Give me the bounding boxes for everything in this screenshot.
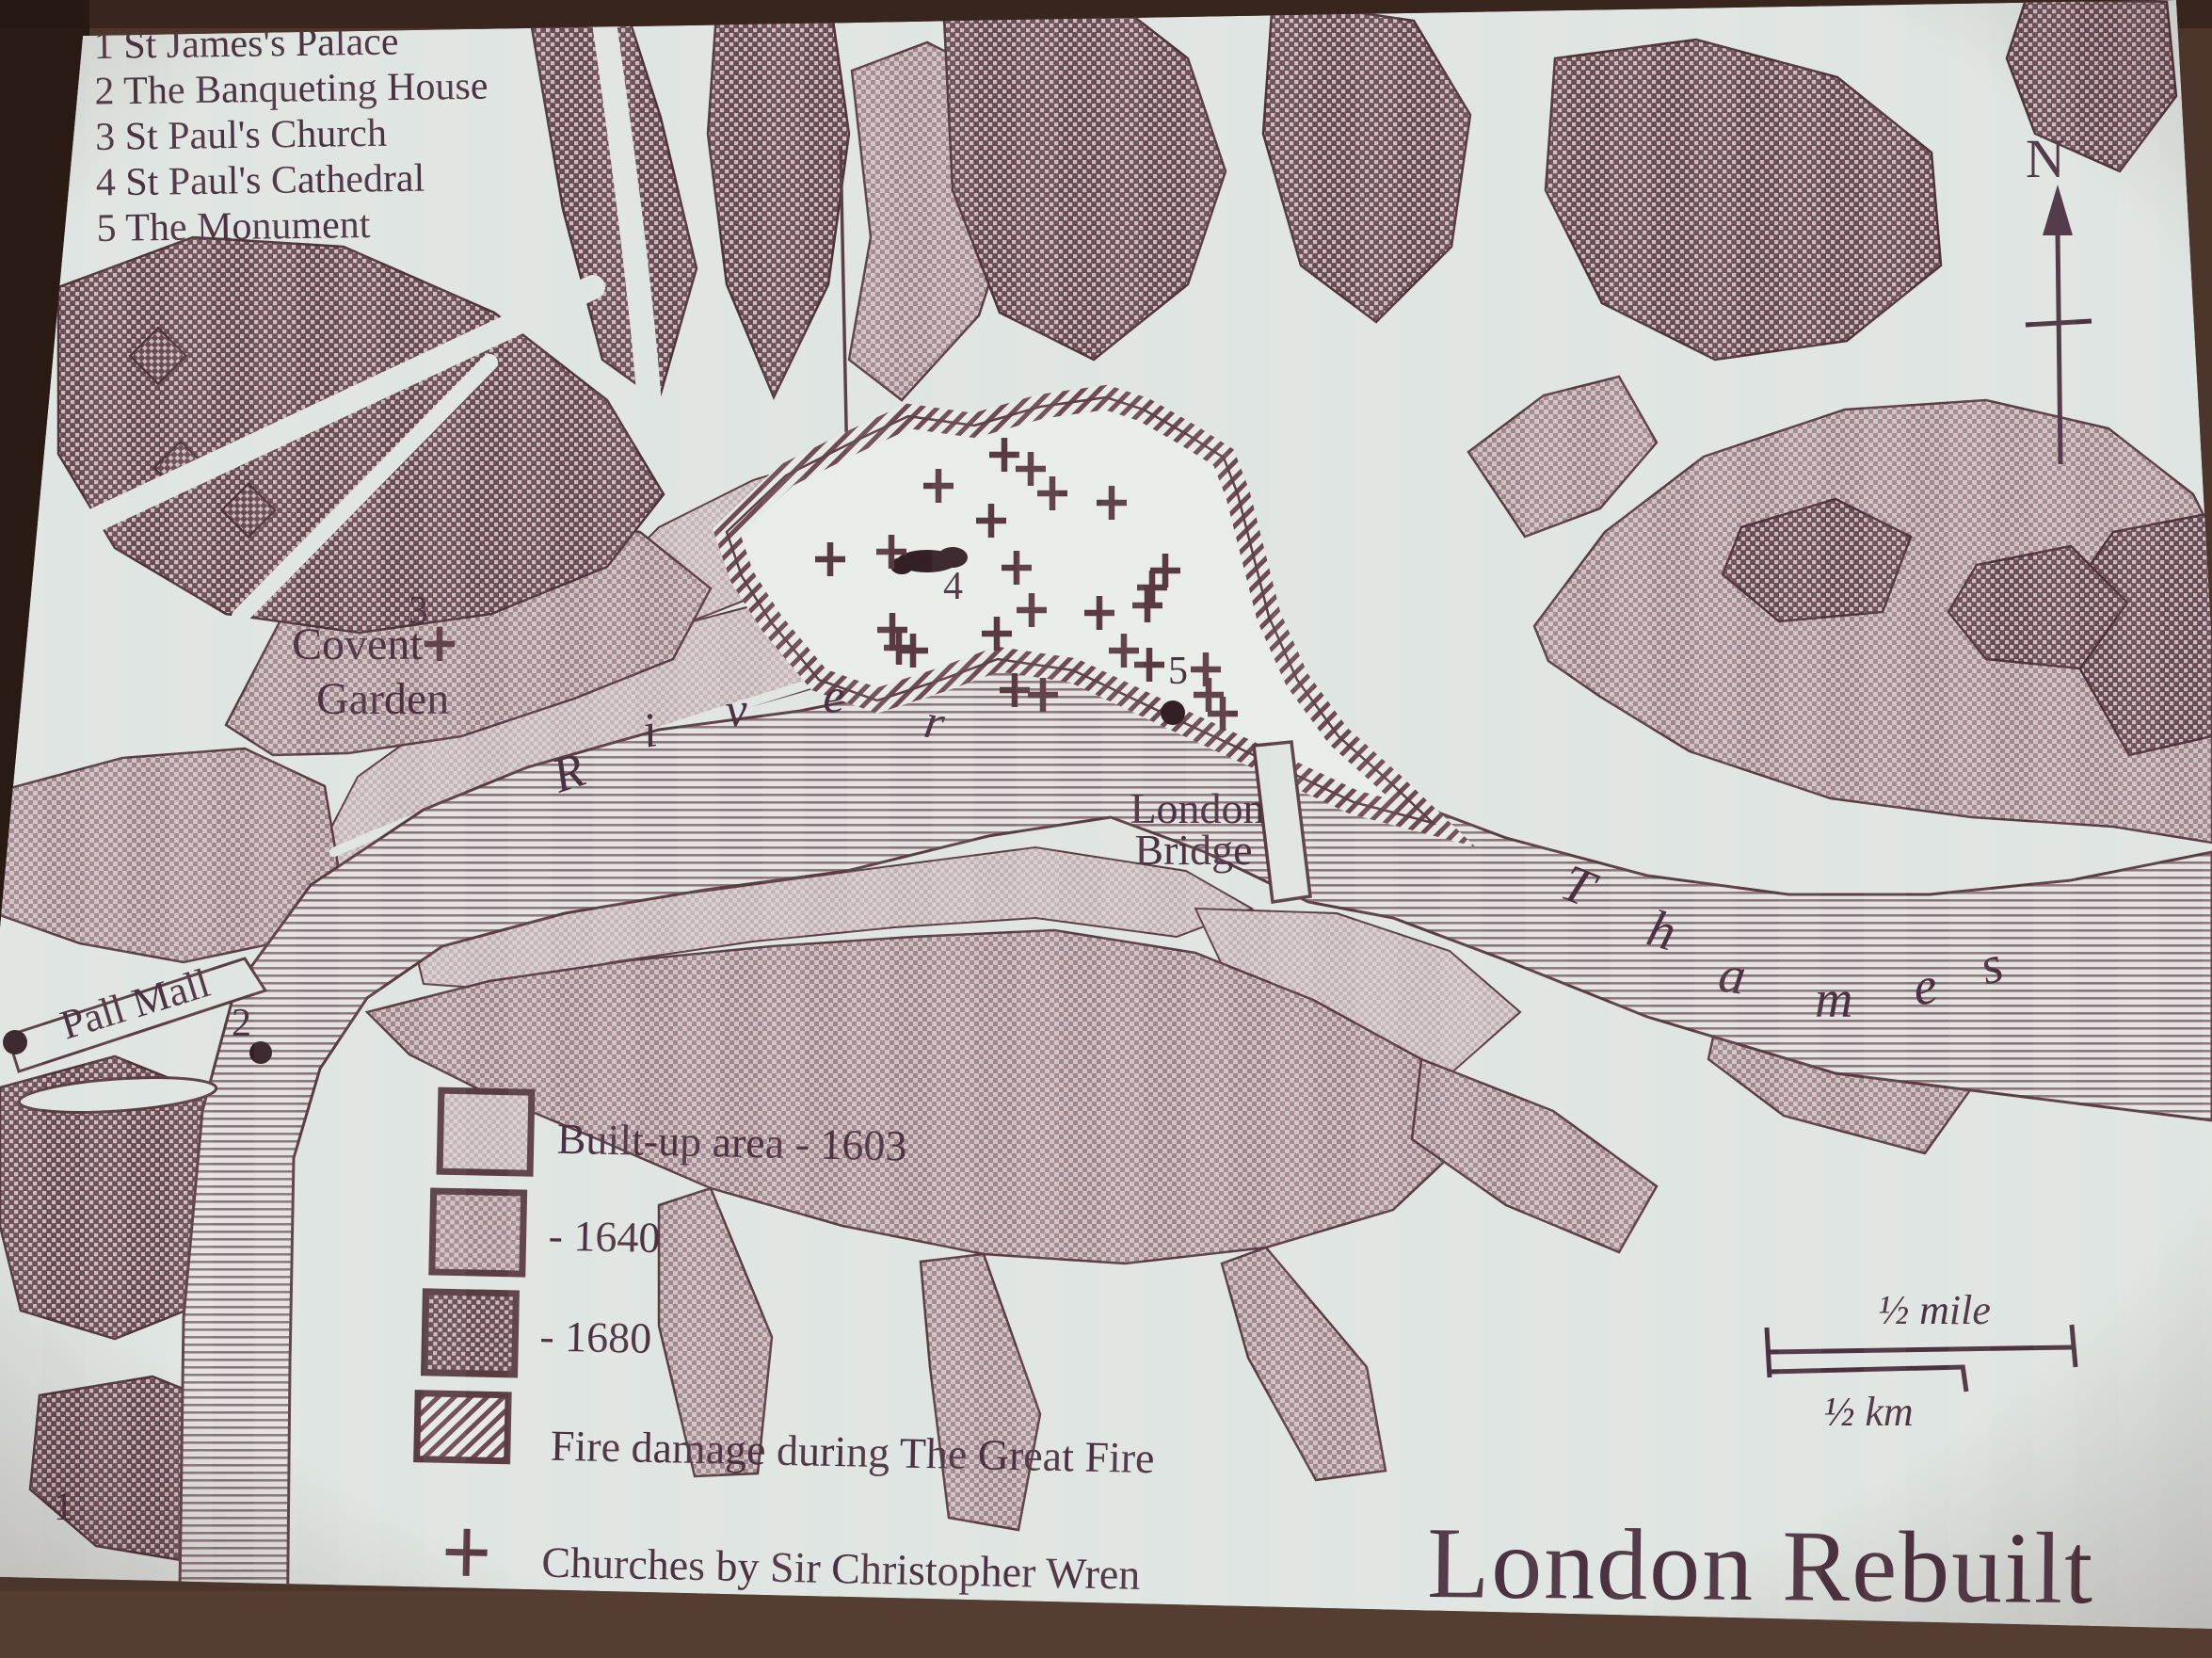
london-rebuilt-map: 12345 Covent Garden London Bridge Pall M… — [0, 0, 2212, 1658]
projected-slide-photo: 12345 Covent Garden London Bridge Pall M… — [0, 0, 2212, 1658]
map-paper: 12345 Covent Garden London Bridge Pall M… — [0, 0, 2212, 1658]
vignette-overlay — [0, 0, 2212, 1658]
